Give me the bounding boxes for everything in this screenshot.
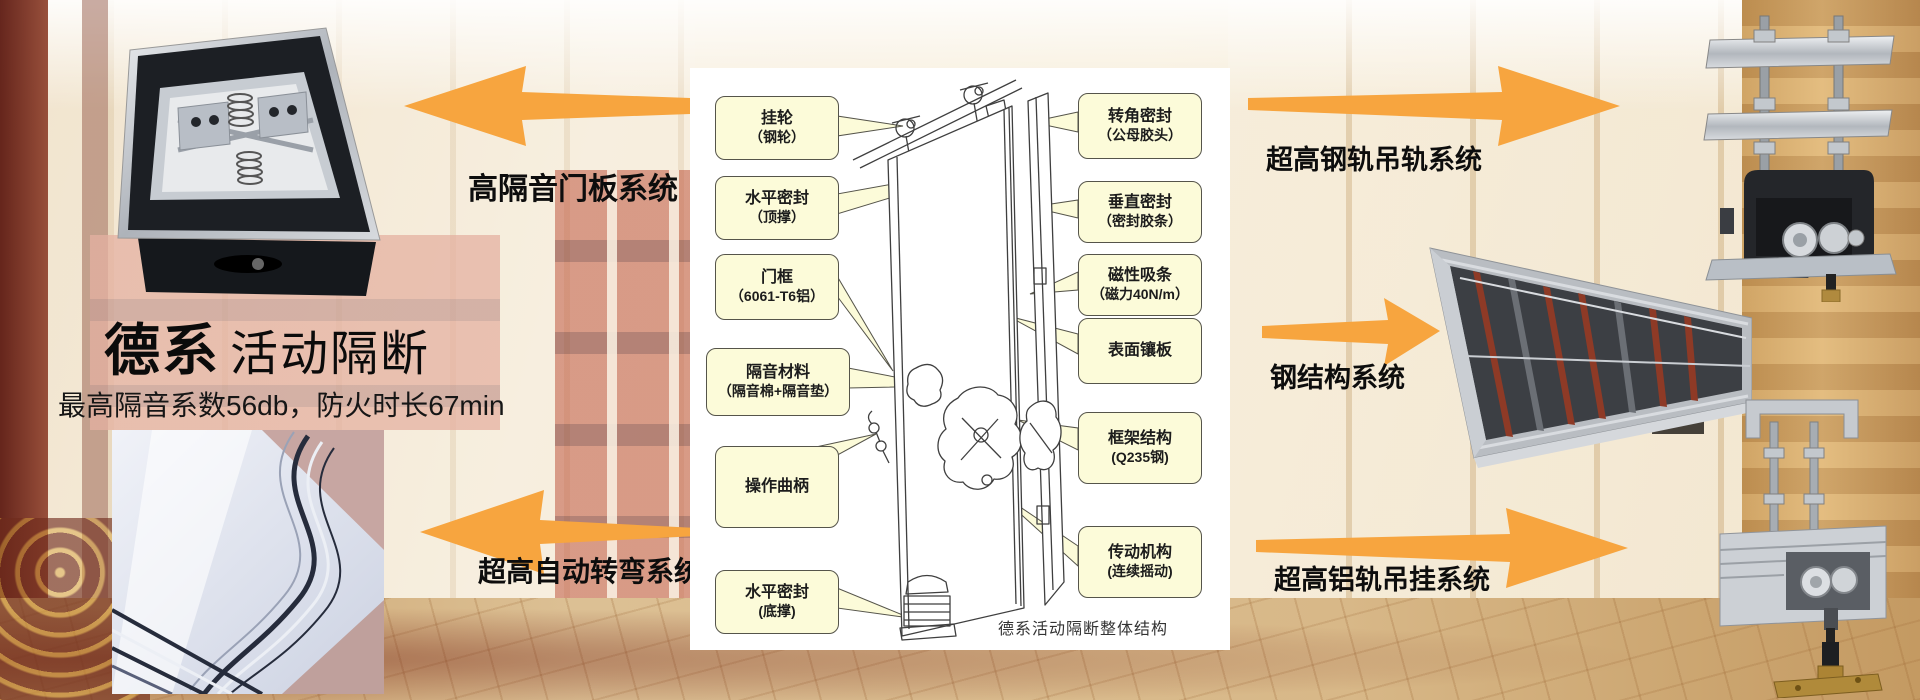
callout-magnetic-strip: 磁性吸条 （磁力40N/m） xyxy=(1078,254,1202,316)
callout-frame-structure: 框架结构 (Q235钢) xyxy=(1078,412,1202,484)
diagram-panel: 挂轮 （钢轮） 水平密封 （顶撑） 门框 （6061-T6铝） 隔音材料 （隔音… xyxy=(690,68,1230,650)
brand-title-bold: 德系 xyxy=(104,319,220,382)
callout-drive-mechanism: 传动机构 (连续摇动) xyxy=(1078,526,1202,598)
label-steel-structure-system: 钢结构系统 xyxy=(1270,356,1405,395)
arrow-left-door-panel xyxy=(398,58,690,154)
callout-operating-crank: 操作曲柄 xyxy=(715,446,839,528)
diagram-caption: 德系活动隔断整体结构 xyxy=(998,615,1198,639)
callout-corner-seal: 转角密封 （公母胶头） xyxy=(1078,93,1202,159)
door-top-mechanism-photo xyxy=(108,0,408,302)
callout-top-seal: 水平密封 （顶撑） xyxy=(715,176,839,240)
curved-track-photo xyxy=(112,430,384,694)
label-door-panel-system: 高隔音门板系统 xyxy=(468,164,678,208)
label-steel-rail-system: 超高钢轨吊轨系统 xyxy=(1266,138,1482,177)
aluminum-rail-hanger-photo xyxy=(1698,386,1908,698)
callout-bottom-seal: 水平密封 (底撑) xyxy=(715,570,839,634)
callout-hanger-wheel: 挂轮 （钢轮） xyxy=(715,96,839,160)
brand-title-light: 活动隔断 xyxy=(230,328,430,381)
callout-acoustic-material: 隔音材料 （隔音棉+隔音垫） xyxy=(706,348,850,416)
callout-surface-panel: 表面镶板 xyxy=(1078,318,1202,384)
label-auto-turn-system: 超高自动转弯系统 xyxy=(478,550,702,590)
partition-systems-banner: 德系活动隔断 最高隔音系数56db，防火时长67min xyxy=(0,0,1920,700)
brand-subtitle: 最高隔音系数56db，防火时长67min xyxy=(58,384,505,424)
callout-vertical-seal: 垂直密封 （密封胶条） xyxy=(1078,181,1202,243)
label-alu-rail-system: 超高铝轨吊挂系统 xyxy=(1274,558,1490,597)
brand-title: 德系活动隔断 xyxy=(104,306,624,387)
callout-door-frame: 门框 （6061-T6铝） xyxy=(715,254,839,320)
